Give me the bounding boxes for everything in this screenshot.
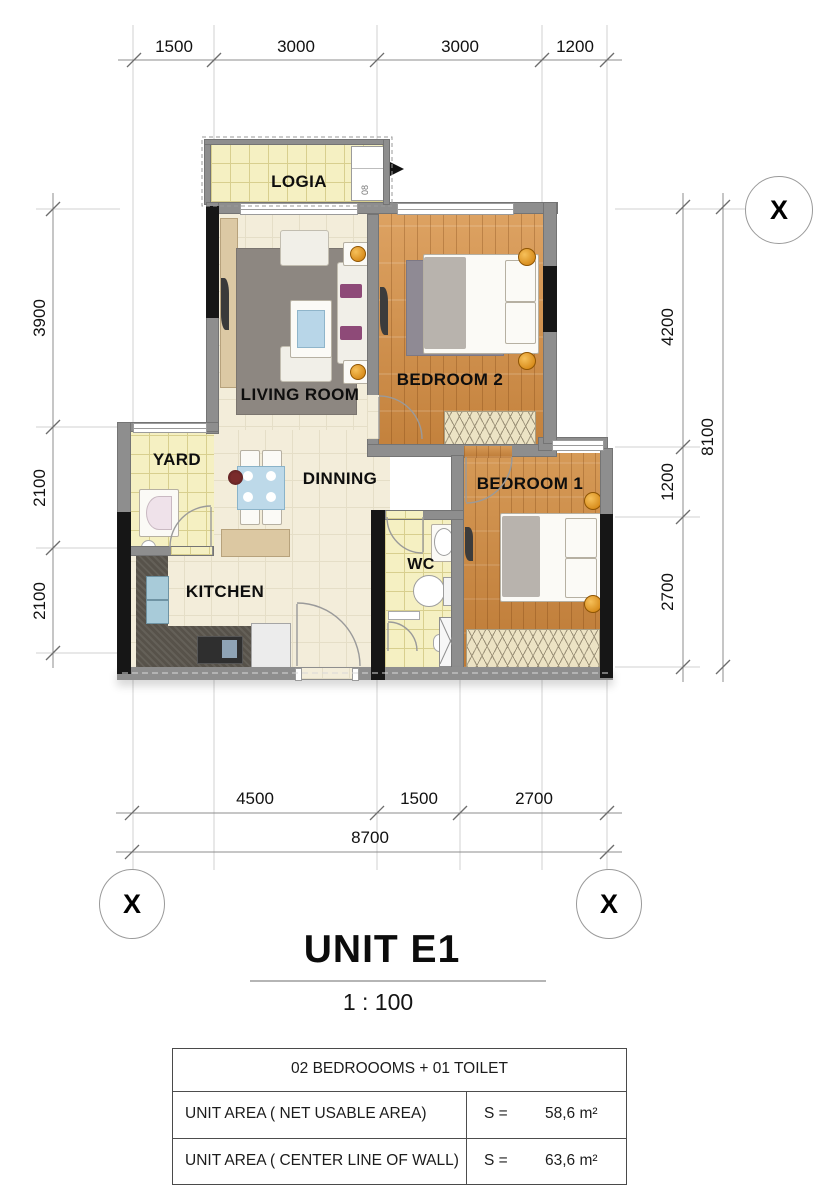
room-label-logia: LOGIA: [271, 172, 327, 192]
bedroom1-blanket: [502, 516, 540, 597]
room-label-wc: WC: [407, 556, 434, 574]
dim-bottom-8700: 8700: [325, 828, 415, 848]
entrance-threshold-left: [295, 668, 302, 681]
window-bedroom2: [397, 203, 514, 215]
armchair-top: [280, 230, 329, 266]
table-column-divider: [466, 1091, 467, 1184]
dim-top-3000b: 3000: [415, 37, 505, 57]
towel-rail: [388, 611, 420, 620]
drain-arrow-icon: [390, 162, 404, 176]
bedroom1-pillow-2: [565, 558, 597, 598]
dim-bottom-2700: 2700: [489, 789, 579, 809]
dim-top-1200: 1200: [530, 37, 620, 57]
bedroom1-pillow-1: [565, 518, 597, 558]
plate-4: [266, 492, 276, 502]
toilet-bowl-icon: [413, 575, 445, 607]
lamp-living-top-icon: [350, 246, 366, 262]
lamp-bedroom2-bottom-icon: [518, 352, 536, 370]
doorway-entrance: [295, 668, 357, 679]
grid-marker-bottom-right: X: [576, 869, 642, 939]
window-bedroom1: [552, 440, 604, 451]
row1-prefix: S =: [484, 1105, 508, 1123]
room-label-yard: YARD: [153, 450, 201, 470]
dining-console: [221, 529, 290, 557]
tv-bedroom1-icon: [465, 527, 473, 561]
dim-top-1500: 1500: [129, 37, 219, 57]
sheet-title: UNIT E1: [232, 928, 532, 972]
column-east-bedroom2: [543, 266, 557, 332]
room-label-kitchen: KITCHEN: [186, 582, 264, 602]
logia-wall-right: [383, 139, 390, 205]
room-label-bedroom1: BEDROOM 1: [477, 474, 584, 494]
column-west-kitchen: [117, 512, 131, 674]
tv-living-icon: [221, 278, 229, 330]
logia-wall-top: [204, 139, 390, 145]
dim-left-2100b: 2100: [30, 556, 50, 646]
unit-info-table: 02 BEDROOOMS + 01 TOILET UNIT AREA ( NET…: [172, 1048, 627, 1185]
sheet-scale: 1 : 100: [232, 989, 524, 1016]
dim-right-8100: 8100: [698, 392, 718, 482]
column-west-living: [206, 206, 219, 318]
column-wc-west: [371, 510, 385, 680]
washing-machine-door: [146, 496, 172, 530]
table-row-divider-2: [173, 1138, 626, 1139]
bedroom2-pillow-2: [505, 302, 536, 344]
bedroom2-blanket: [424, 257, 466, 349]
sofa-pillow-1: [340, 284, 362, 298]
title-underline: [250, 980, 546, 982]
dim-right-4200: 4200: [658, 282, 678, 372]
window-yard: [133, 423, 207, 433]
sofa-pillow-2: [340, 326, 362, 340]
doorway-bedroom1: [464, 446, 512, 458]
doorway-yard: [171, 547, 212, 555]
logia-wall-left: [204, 139, 211, 205]
bedroom1-wardrobe: [466, 629, 600, 668]
row2-label: UNIT AREA ( CENTER LINE OF WALL): [185, 1152, 459, 1170]
floor-plan-sheet: 08: [0, 0, 833, 1200]
column-east-bedroom1: [600, 514, 613, 678]
room-label-bedroom2: BEDROOM 2: [397, 370, 504, 390]
dim-left-2100a: 2100: [30, 443, 50, 533]
wall-wc-bedroom1: [451, 455, 464, 668]
lamp-bedroom2-top-icon: [518, 248, 536, 266]
room-label-dinning: DINNING: [303, 469, 378, 489]
row2-value: 63,6 m²: [545, 1152, 598, 1170]
fridge: [251, 623, 291, 669]
flower-decor-icon: [228, 470, 243, 485]
bedroom2-pillow-1: [505, 260, 536, 302]
window-living: [240, 203, 358, 215]
table-row-divider-1: [173, 1091, 626, 1092]
grid-marker-label: X: [600, 889, 618, 920]
row1-value: 58,6 m²: [545, 1105, 598, 1123]
coffee-table-glass: [297, 310, 325, 348]
entrance-threshold-right: [352, 668, 359, 681]
dim-left-3900: 3900: [30, 273, 50, 363]
dim-right-2700: 2700: [658, 547, 678, 637]
dim-bottom-4500: 4500: [210, 789, 300, 809]
doorway-bedroom2: [367, 395, 379, 439]
row1-label: UNIT AREA ( NET USABLE AREA): [185, 1105, 426, 1123]
table-header: 02 BEDROOOMS + 01 TOILET: [173, 1060, 626, 1078]
shaft-divider-line: [352, 168, 383, 169]
shaft-label: 08: [360, 175, 374, 195]
stove-pan-icon: [222, 640, 237, 658]
dim-bottom-1500: 1500: [374, 789, 464, 809]
plate-3: [243, 492, 253, 502]
tv-bedroom2-icon: [380, 287, 388, 335]
grid-marker-label: X: [123, 889, 141, 920]
dim-right-1200: 1200: [658, 437, 678, 527]
room-label-living: LIVING ROOM: [241, 385, 360, 405]
doorway-wc: [386, 511, 423, 519]
grid-marker-bottom-left: X: [99, 869, 165, 939]
wall-south: [117, 667, 613, 680]
plate-1: [243, 471, 253, 481]
dim-top-3000a: 3000: [251, 37, 341, 57]
grid-marker-top-right: X: [745, 176, 813, 244]
row2-prefix: S =: [484, 1152, 508, 1170]
plate-2: [266, 471, 276, 481]
kitchen-sink-1: [146, 576, 169, 600]
lamp-living-bottom-icon: [350, 364, 366, 380]
grid-marker-label: X: [770, 195, 788, 226]
kitchen-sink-2: [146, 600, 169, 624]
